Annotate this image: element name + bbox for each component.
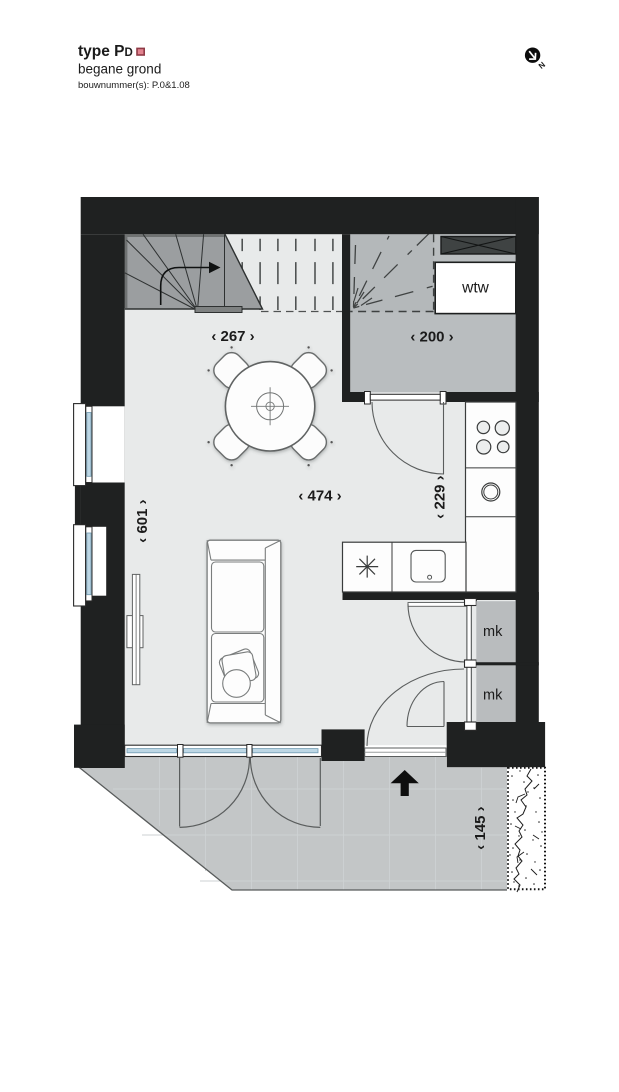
svg-text:‹ 601 ›: ‹ 601 › <box>134 499 151 542</box>
svg-text:N: N <box>537 60 547 71</box>
svg-text:mk: mk <box>483 688 503 704</box>
svg-text:bouwnummer(s): P.0&1.08: bouwnummer(s): P.0&1.08 <box>78 80 190 91</box>
svg-text:‹ 474 ›: ‹ 474 › <box>298 488 341 505</box>
svg-text:begane grond: begane grond <box>78 62 161 77</box>
svg-text:type PD: type PD <box>78 43 133 60</box>
svg-text:mk: mk <box>483 624 503 640</box>
svg-text:‹ 267 ›: ‹ 267 › <box>211 328 254 345</box>
svg-text:‹ 229 ›: ‹ 229 › <box>432 475 449 518</box>
svg-text:wtw: wtw <box>461 280 490 297</box>
svg-text:‹ 200 ›: ‹ 200 › <box>410 329 453 346</box>
svg-text:‹ 145 ›: ‹ 145 › <box>472 806 489 849</box>
